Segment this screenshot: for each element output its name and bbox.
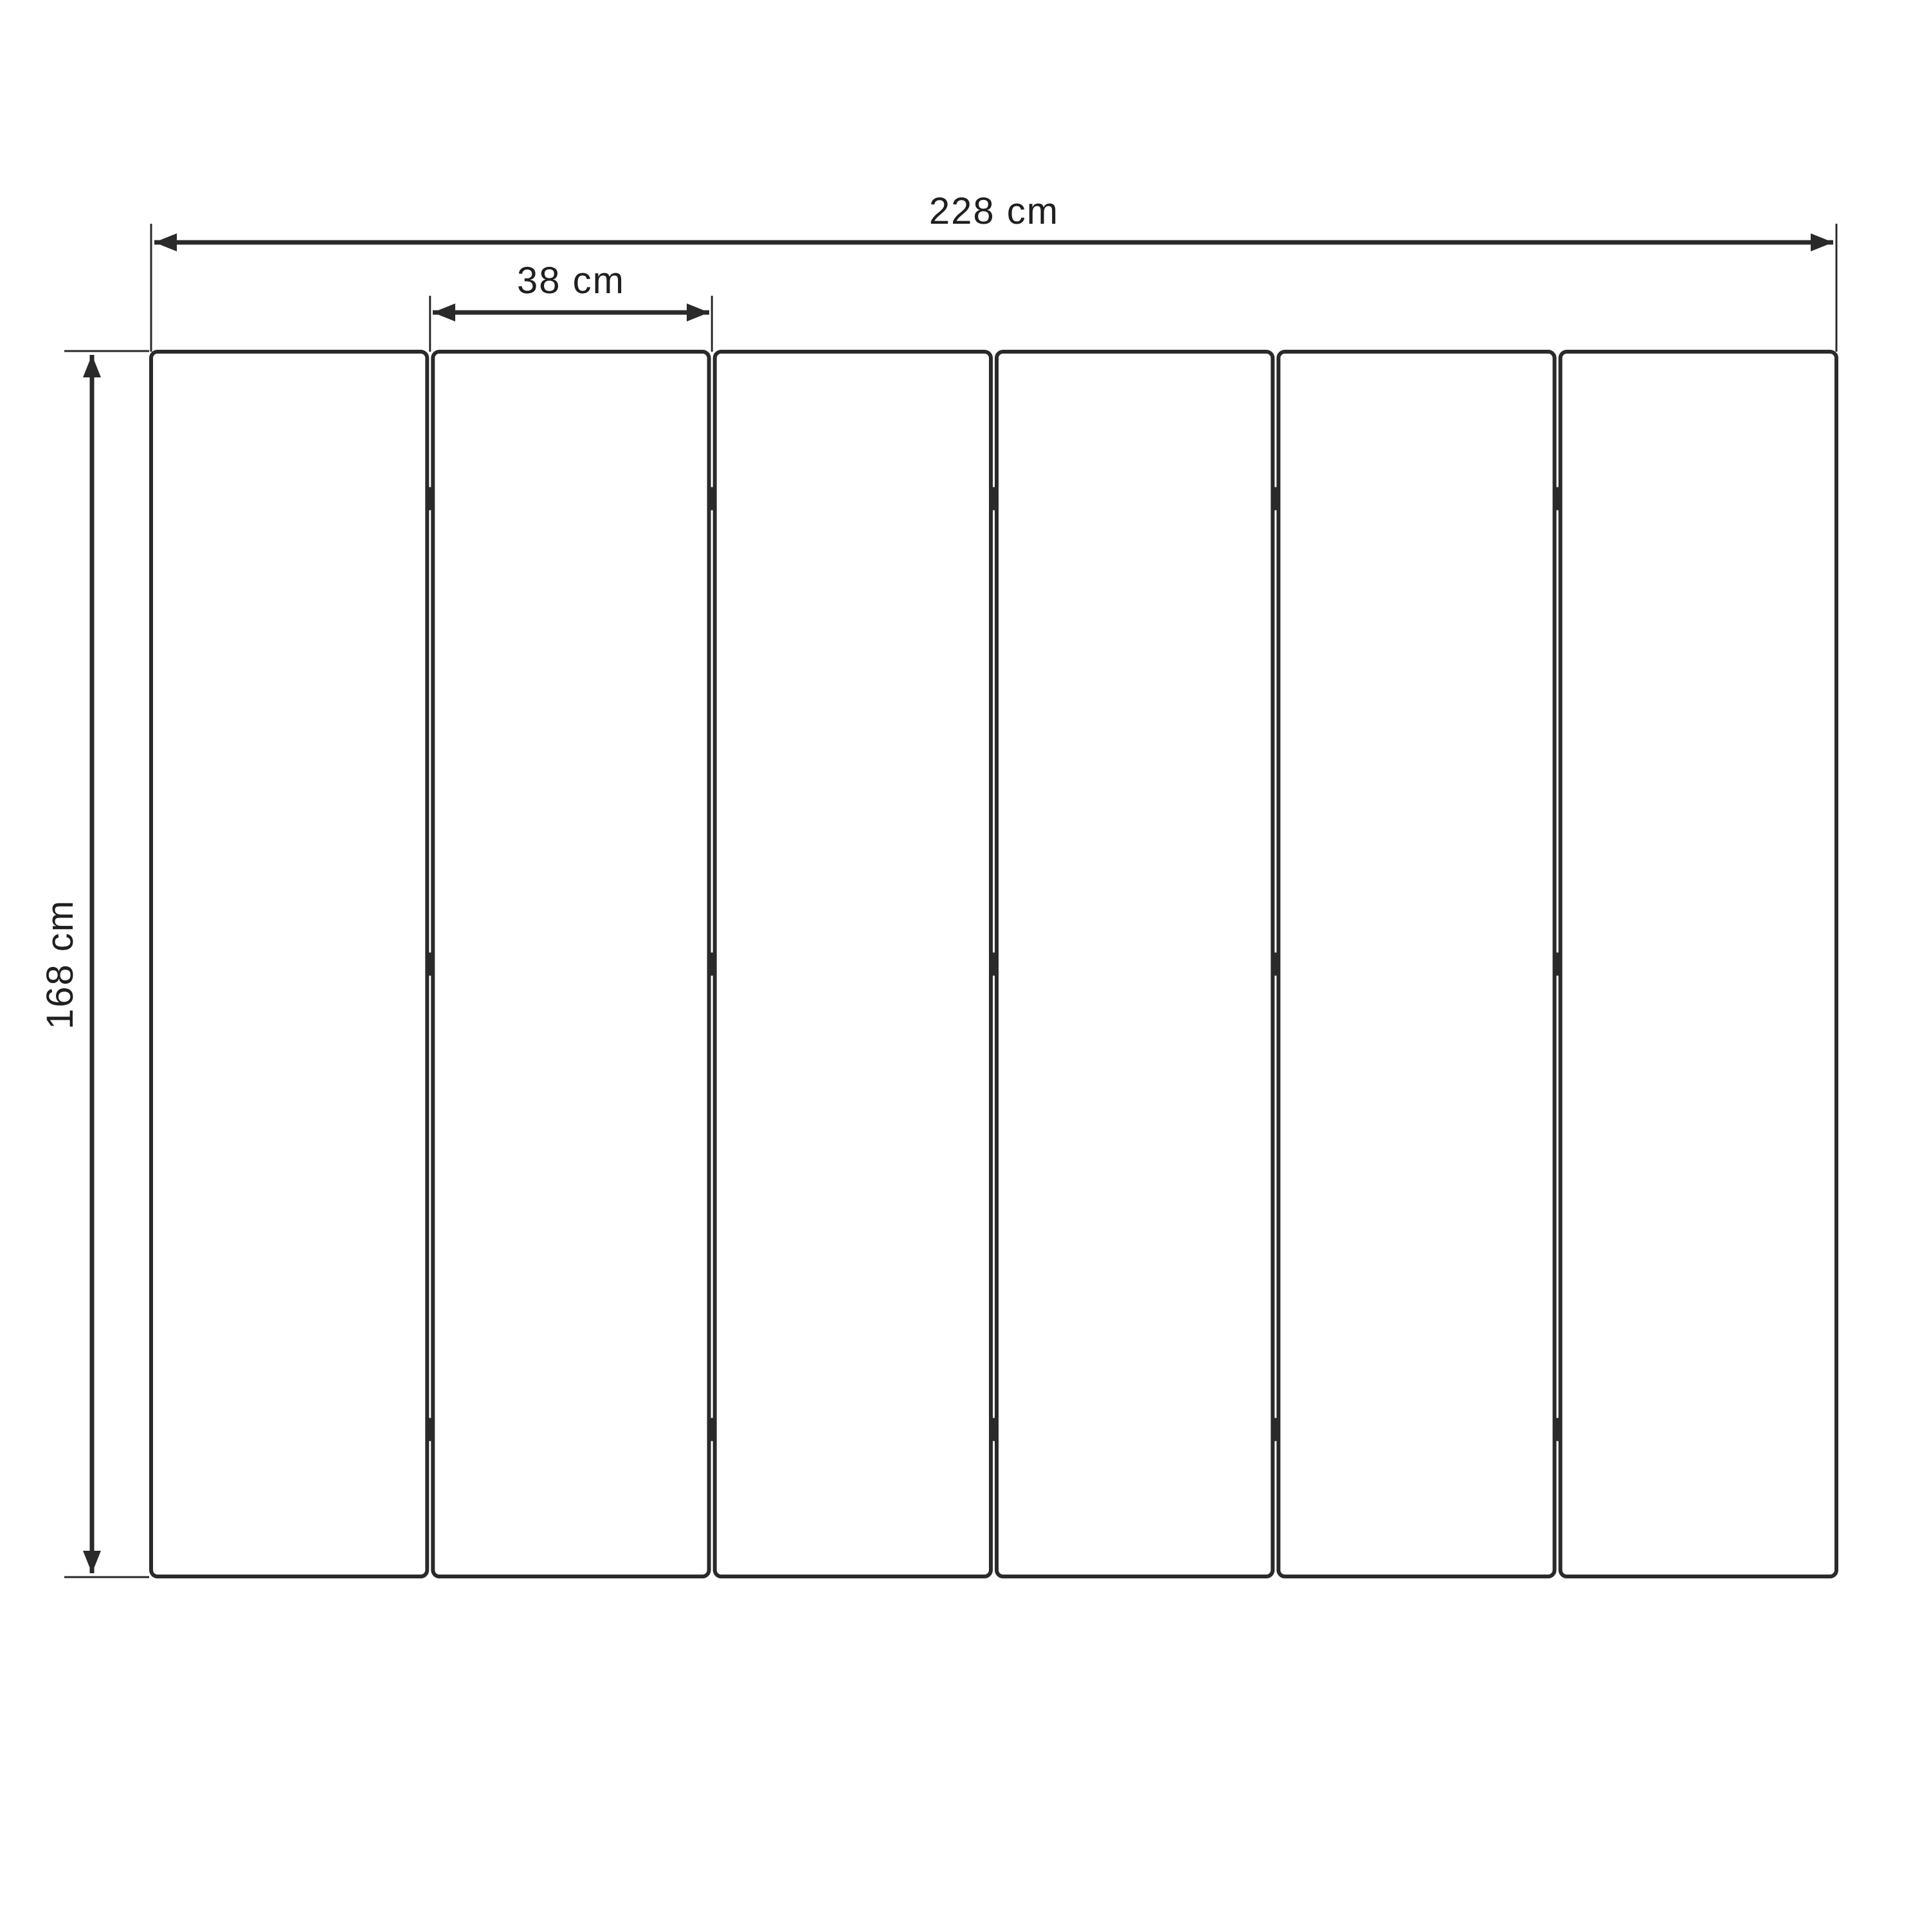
hinge-mark-gap5-row2 xyxy=(1553,953,1562,976)
hinge-mark-gap3-row1 xyxy=(990,487,999,510)
height-dimension: 168 cm xyxy=(39,351,149,1577)
panel-2 xyxy=(433,352,709,1576)
hinge-mark-gap1-row2 xyxy=(426,953,435,976)
hinge-mark-gap3-row2 xyxy=(990,953,999,976)
panel-width-label: 38 cm xyxy=(517,260,625,302)
dimension-drawing: 228 cm 38 cm 168 cm xyxy=(0,0,1929,1929)
panel-width-dimension: 38 cm xyxy=(430,260,712,352)
panel-5 xyxy=(1278,352,1554,1576)
panel-4 xyxy=(997,352,1272,1576)
total-width-label: 228 cm xyxy=(929,190,1059,232)
folding-screen-diagram: 228 cm 38 cm 168 cm xyxy=(0,0,1929,1929)
panel-3 xyxy=(715,352,991,1576)
hinge-mark-gap3-row3 xyxy=(990,1418,999,1441)
hinge-mark-gap4-row1 xyxy=(1271,487,1280,510)
total-width-dimension: 228 cm xyxy=(151,190,1836,352)
hinge-mark-gap2-row3 xyxy=(707,1418,716,1441)
height-label: 168 cm xyxy=(39,899,81,1029)
panel-1 xyxy=(151,352,427,1576)
hinge-mark-gap2-row1 xyxy=(707,487,716,510)
hinge-mark-gap4-row2 xyxy=(1271,953,1280,976)
hinge-mark-gap4-row3 xyxy=(1271,1418,1280,1441)
hinge-mark-gap5-row3 xyxy=(1553,1418,1562,1441)
hinge-mark-gap1-row1 xyxy=(426,487,435,510)
hinge-mark-gap1-row3 xyxy=(426,1418,435,1441)
hinge-mark-gap5-row1 xyxy=(1553,487,1562,510)
panel-6 xyxy=(1561,352,1836,1576)
hinge-mark-gap2-row2 xyxy=(707,953,716,976)
